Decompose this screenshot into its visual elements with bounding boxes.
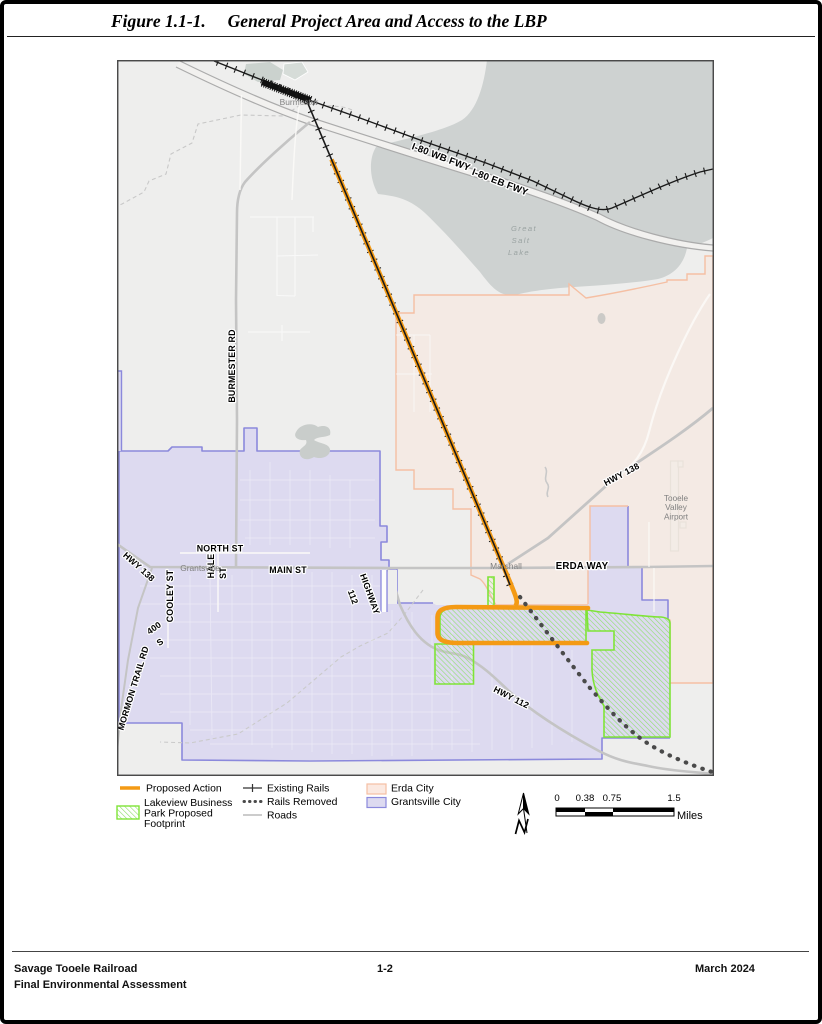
svg-text:Valley: Valley (665, 503, 688, 512)
svg-text:Burmester: Burmester (280, 97, 319, 107)
svg-text:Tooele: Tooele (664, 494, 689, 503)
svg-text:Grantsville: Grantsville (180, 563, 220, 573)
svg-text:Great: Great (511, 224, 537, 233)
svg-text:Marshall: Marshall (490, 561, 522, 571)
svg-text:MAIN ST: MAIN ST (269, 565, 307, 575)
svg-text:Lake: Lake (508, 248, 530, 257)
svg-text:Salt: Salt (512, 236, 531, 245)
svg-text:BURMESTER RD: BURMESTER RD (227, 329, 237, 402)
svg-text:COOLEY ST: COOLEY ST (165, 569, 175, 622)
svg-text:ERDA WAY: ERDA WAY (556, 561, 609, 572)
svg-text:NORTH ST: NORTH ST (197, 544, 244, 554)
svg-text:Airport: Airport (664, 513, 689, 522)
